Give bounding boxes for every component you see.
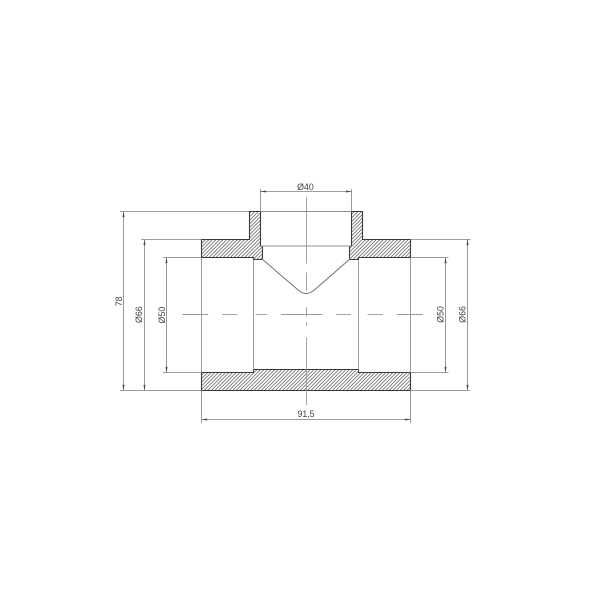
svg-text:Ø50: Ø50 [157,307,167,324]
svg-text:Ø50: Ø50 [436,306,446,323]
svg-text:91,5: 91,5 [297,409,314,419]
svg-text:Ø66: Ø66 [458,306,468,323]
svg-text:Ø66: Ø66 [134,306,144,323]
svg-text:78: 78 [114,296,124,306]
svg-text:Ø40: Ø40 [297,182,314,192]
